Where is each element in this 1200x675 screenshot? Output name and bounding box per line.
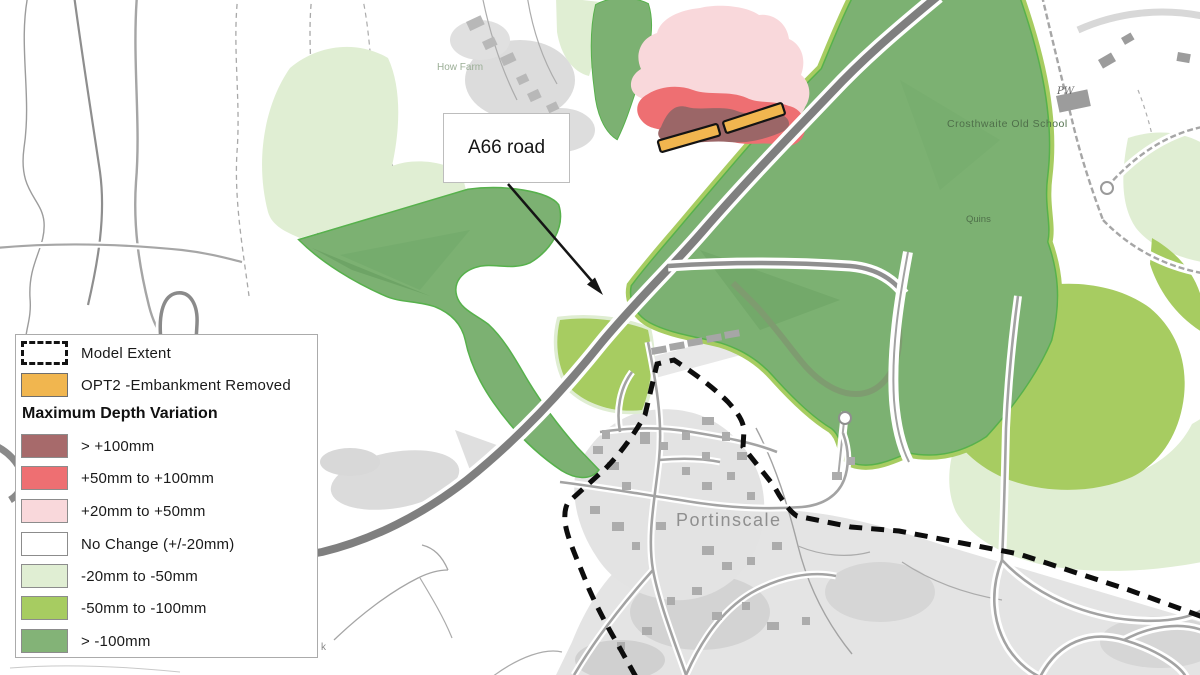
label-how-farm: How Farm [437,62,483,73]
a66-annotation-box: A66 road [443,113,570,183]
increase-high-label: > +100mm [81,438,154,455]
decrease-mid-label: -50mm to -100mm [81,600,207,617]
opt2-label: OPT2 -Embankment Removed [81,377,291,394]
increase-mid-label: +50mm to +100mm [81,470,214,487]
legend-row-opt2: OPT2 -Embankment Removed [21,373,291,397]
opt2-swatch [21,373,68,397]
legend-row-model-extent: Model Extent [21,341,171,365]
model-extent-label: Model Extent [81,345,171,362]
model-extent-swatch [21,341,68,365]
legend: Model Extent OPT2 -Embankment Removed Ma… [15,334,318,658]
no-change-swatch [21,532,68,556]
increase-mid-swatch [21,466,68,490]
increase-high-swatch [21,434,68,458]
decrease-mid-swatch [21,596,68,620]
legend-row-increase-low: +20mm to +50mm [21,499,206,523]
legend-row-no-change: No Change (+/-20mm) [21,532,234,556]
legend-row-increase-mid: +50mm to +100mm [21,466,214,490]
a66-annotation-label: A66 road [468,137,545,159]
decrease-low-label: -20mm to -50mm [81,568,198,585]
legend-row-decrease-mid: -50mm to -100mm [21,596,207,620]
legend-row-decrease-high: > -100mm [21,629,151,653]
legend-section-title: Maximum Depth Variation [22,405,218,423]
label-school: Crosthwaite Old School [947,118,1068,130]
increase-low-swatch [21,499,68,523]
label-portinscale: Portinscale [676,510,782,530]
increase-low-label: +20mm to +50mm [81,503,206,520]
label-pw: PW [1056,86,1075,97]
decrease-low-swatch [21,564,68,588]
legend-row-decrease-low: -20mm to -50mm [21,564,198,588]
decrease-high-swatch [21,629,68,653]
label-quins: Quins [966,214,991,225]
no-change-label: No Change (+/-20mm) [81,536,234,553]
legend-row-increase-high: > +100mm [21,434,154,458]
flood-model-map-figure: How Farm Crosthwaite Old School Quins PW… [0,0,1200,675]
decrease-high-label: > -100mm [81,633,151,650]
